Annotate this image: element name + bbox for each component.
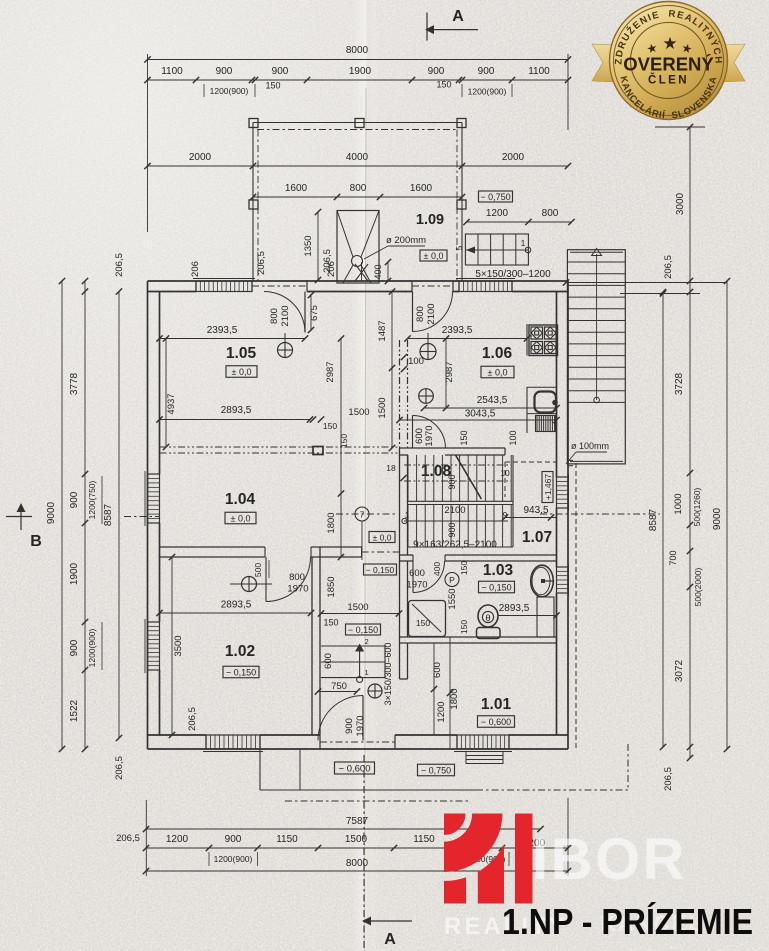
svg-text:206: 206 [190, 261, 201, 277]
svg-text:900: 900 [344, 718, 355, 734]
svg-text:− 0,150: − 0,150 [481, 582, 511, 592]
svg-text:B: B [30, 533, 42, 550]
svg-text:18: 18 [386, 463, 396, 473]
svg-text:943,5: 943,5 [523, 505, 548, 516]
svg-text:± 0,0: ± 0,0 [488, 367, 508, 377]
svg-text:1.03: 1.03 [483, 562, 514, 579]
svg-text:900: 900 [447, 522, 457, 537]
svg-text:1200: 1200 [166, 834, 189, 845]
svg-text:2: 2 [365, 637, 369, 646]
svg-text:1970: 1970 [355, 715, 366, 736]
svg-text:1150: 1150 [413, 834, 435, 845]
svg-text:1550: 1550 [447, 588, 458, 609]
svg-text:− 0,600: − 0,600 [339, 763, 371, 774]
svg-text:206,5: 206,5 [256, 251, 267, 275]
svg-text:1850: 1850 [326, 576, 337, 597]
svg-text:A: A [384, 931, 396, 948]
svg-text:5: 5 [455, 245, 464, 250]
svg-text:− 0,150: − 0,150 [366, 565, 395, 575]
svg-text:500: 500 [253, 563, 263, 577]
svg-text:500(2000): 500(2000) [693, 567, 703, 606]
svg-text:± 0,0: ± 0,0 [232, 367, 252, 377]
svg-text:1.NP - PRÍZEMIE: 1.NP - PRÍZEMIE [502, 901, 753, 942]
svg-text:800: 800 [269, 308, 280, 324]
svg-text:1.06: 1.06 [482, 345, 513, 362]
svg-text:900: 900 [69, 491, 80, 508]
svg-text:θ: θ [485, 613, 490, 623]
svg-text:P: P [449, 575, 455, 585]
svg-text:3778: 3778 [69, 372, 80, 395]
svg-text:1200(900): 1200(900) [210, 86, 249, 96]
svg-text:9000: 9000 [46, 501, 57, 524]
svg-text:2543,5: 2543,5 [477, 395, 508, 406]
svg-text:900: 900 [225, 834, 242, 845]
svg-text:900: 900 [272, 66, 289, 77]
svg-text:− 0,750: − 0,750 [480, 192, 510, 202]
svg-text:8587: 8587 [648, 508, 659, 531]
svg-text:− 0,750: − 0,750 [421, 765, 451, 775]
svg-text:206,5: 206,5 [663, 767, 674, 791]
svg-text:9×163/262,5–2100: 9×163/262,5–2100 [413, 540, 497, 551]
svg-text:150: 150 [416, 618, 430, 628]
svg-text:1200(900): 1200(900) [87, 628, 97, 667]
svg-text:2100: 2100 [444, 505, 465, 516]
svg-text:3728: 3728 [674, 372, 685, 395]
svg-text:− 0,150: − 0,150 [226, 667, 256, 677]
svg-text:206,5: 206,5 [116, 833, 140, 844]
svg-text:1100: 1100 [161, 66, 183, 77]
svg-text:− 0,600: − 0,600 [481, 717, 511, 727]
svg-text:1800: 1800 [326, 512, 337, 533]
svg-text:3500: 3500 [173, 635, 184, 656]
svg-text:206,5: 206,5 [663, 255, 674, 279]
svg-text:± 0,0: ± 0,0 [373, 532, 392, 542]
svg-text:1522: 1522 [69, 699, 80, 722]
svg-text:1.02: 1.02 [225, 643, 255, 660]
svg-text:1500: 1500 [377, 397, 388, 418]
svg-text:8587: 8587 [103, 503, 114, 526]
svg-text:900: 900 [69, 639, 80, 656]
svg-text:900: 900 [216, 66, 233, 77]
svg-text:2000: 2000 [189, 152, 212, 163]
svg-text:A: A [452, 8, 464, 25]
svg-text:100: 100 [408, 356, 424, 367]
svg-text:2100: 2100 [280, 305, 291, 326]
svg-text:4000: 4000 [346, 152, 369, 163]
svg-text:1.01: 1.01 [481, 696, 512, 713]
svg-text:8000: 8000 [346, 45, 369, 56]
svg-text:1500: 1500 [347, 602, 368, 613]
svg-text:1350: 1350 [303, 235, 314, 256]
svg-text:2893,5: 2893,5 [221, 600, 252, 611]
svg-text:800: 800 [350, 183, 367, 194]
svg-text:1970: 1970 [287, 584, 308, 595]
svg-text:1970: 1970 [406, 580, 427, 591]
svg-text:3043,5: 3043,5 [465, 409, 496, 420]
svg-text:150: 150 [459, 430, 469, 445]
svg-text:7587: 7587 [346, 816, 369, 827]
svg-text:OVERENÝ: OVERENÝ [623, 54, 714, 75]
svg-text:5×150/300–1200: 5×150/300–1200 [475, 269, 551, 280]
svg-text:800: 800 [289, 572, 305, 583]
svg-text:1970: 1970 [424, 425, 435, 446]
svg-text:4937: 4937 [166, 393, 177, 414]
svg-text:2100: 2100 [426, 303, 437, 324]
svg-text:1: 1 [365, 668, 369, 677]
svg-text:ø 100mm: ø 100mm [571, 441, 609, 451]
svg-text:1100: 1100 [528, 66, 550, 77]
svg-text:1200(900): 1200(900) [468, 87, 507, 97]
svg-text:2893,5: 2893,5 [499, 603, 530, 614]
svg-text:500(1260): 500(1260) [692, 487, 702, 526]
svg-text:± 0,0: ± 0,0 [231, 513, 251, 523]
svg-text:800: 800 [415, 306, 426, 322]
svg-text:1200(750): 1200(750) [87, 480, 97, 519]
svg-text:1200: 1200 [436, 701, 447, 722]
svg-text:3000: 3000 [675, 192, 686, 215]
svg-text:150: 150 [459, 561, 469, 575]
svg-text:800: 800 [542, 208, 559, 219]
svg-text:2000: 2000 [502, 152, 525, 163]
svg-text:1: 1 [521, 238, 526, 248]
svg-text:1600: 1600 [285, 183, 308, 194]
svg-text:1200: 1200 [486, 208, 509, 219]
svg-text:ø 200mm: ø 200mm [386, 235, 426, 246]
svg-text:3072: 3072 [674, 659, 685, 682]
svg-text:100: 100 [508, 430, 518, 445]
svg-text:400: 400 [373, 264, 383, 279]
svg-text:700: 700 [668, 550, 678, 565]
svg-text:1.05: 1.05 [226, 345, 257, 362]
svg-text:1500: 1500 [348, 407, 369, 418]
svg-text:750: 750 [331, 681, 347, 692]
svg-text:− 0,150: − 0,150 [348, 625, 378, 635]
svg-text:900: 900 [447, 474, 457, 489]
svg-text:206,5: 206,5 [114, 756, 125, 780]
svg-text:2987: 2987 [325, 361, 336, 382]
svg-text:1900: 1900 [349, 66, 372, 77]
svg-text:150: 150 [339, 434, 349, 448]
svg-text:900: 900 [428, 66, 445, 77]
svg-text:1900: 1900 [69, 562, 80, 585]
svg-text:150: 150 [459, 620, 469, 634]
svg-text:1: 1 [405, 511, 410, 520]
svg-text:1150: 1150 [276, 834, 298, 845]
svg-text:1487: 1487 [377, 320, 388, 341]
svg-text:1200(900): 1200(900) [214, 854, 253, 864]
svg-text:2393,5: 2393,5 [207, 325, 238, 336]
svg-text:1.09: 1.09 [416, 212, 444, 228]
svg-text:2893,5: 2893,5 [221, 405, 252, 416]
svg-text:IBOR: IBOR [532, 827, 687, 892]
svg-text:150: 150 [265, 81, 280, 91]
svg-text:600: 600 [323, 653, 334, 669]
svg-text:± 0,0: ± 0,0 [424, 251, 444, 261]
svg-text:1000: 1000 [673, 493, 684, 514]
svg-text:2393,5: 2393,5 [442, 325, 473, 336]
svg-text:1.07: 1.07 [522, 529, 552, 546]
svg-text:1600: 1600 [410, 183, 433, 194]
svg-text:400: 400 [432, 562, 442, 576]
svg-text:150: 150 [436, 80, 451, 90]
svg-text:8000: 8000 [346, 858, 369, 869]
svg-text:150: 150 [323, 618, 338, 628]
svg-text:600: 600 [409, 568, 425, 579]
svg-text:150: 150 [323, 421, 337, 431]
svg-text:206,5: 206,5 [114, 253, 125, 277]
svg-text:900: 900 [478, 66, 495, 77]
svg-text:206: 206 [326, 261, 337, 277]
svg-text:+1,467: +1,467 [543, 474, 553, 501]
svg-text:ČLEN: ČLEN [648, 74, 689, 87]
svg-text:9000: 9000 [712, 507, 723, 530]
svg-text:3×150/300–600: 3×150/300–600 [383, 643, 393, 706]
svg-text:206,5: 206,5 [187, 707, 198, 731]
svg-text:★: ★ [662, 34, 677, 53]
svg-text:1.04: 1.04 [225, 491, 256, 508]
